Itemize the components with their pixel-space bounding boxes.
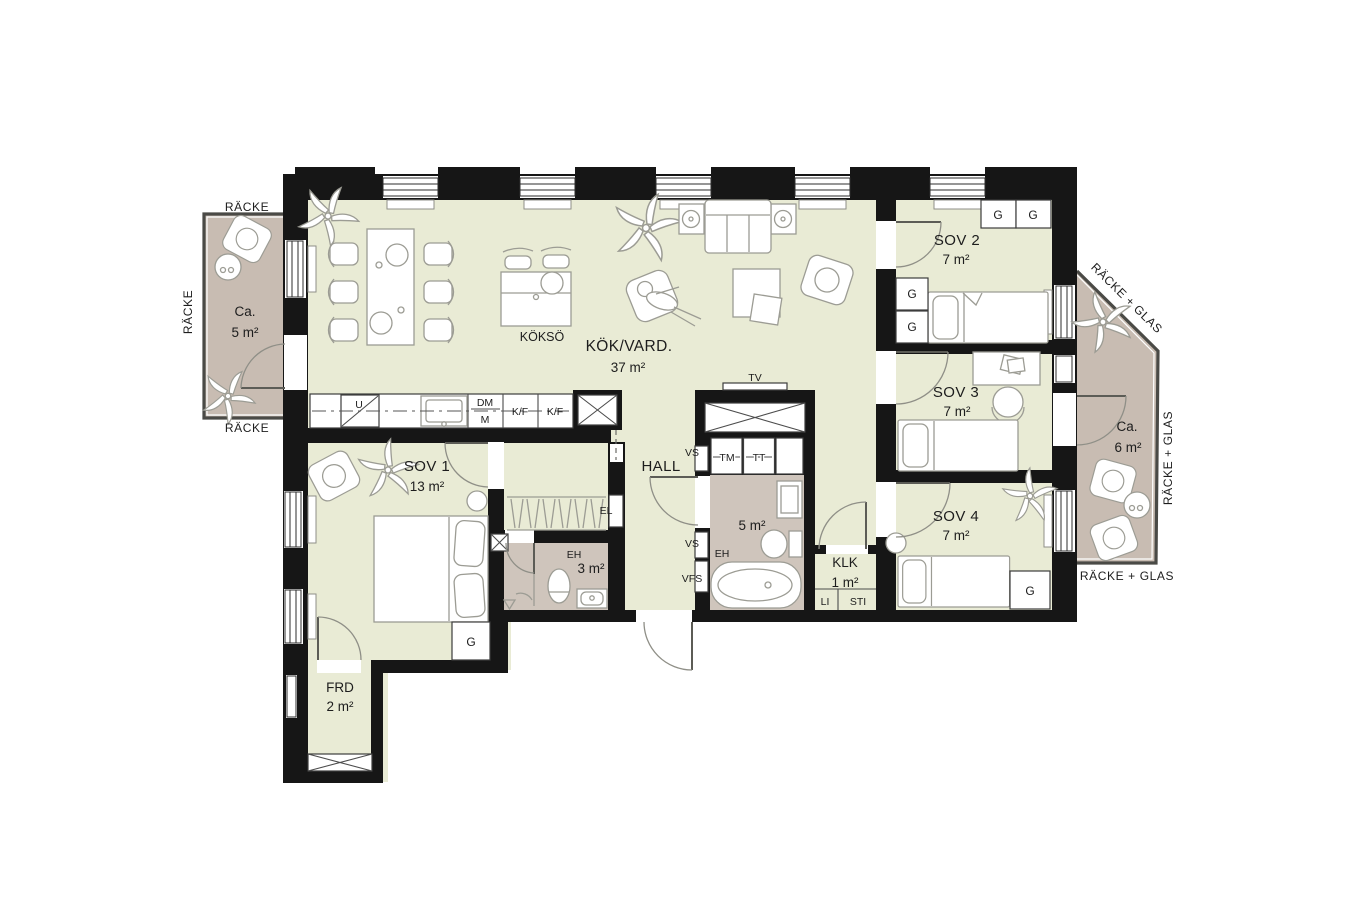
side-square <box>750 294 782 325</box>
room-label-sov3: SOV 3 <box>933 384 979 401</box>
room-label-sov4: SOV 4 <box>933 508 979 525</box>
label-vs-top: VS <box>685 447 699 459</box>
window-top-4 <box>795 178 850 209</box>
g-label-stack-a: G <box>907 287 916 301</box>
label-oven: U <box>355 399 363 411</box>
label-kokso: KÖKSÖ <box>520 330 565 344</box>
area-label-sov2: 7 m² <box>943 252 971 267</box>
label-m: M <box>481 414 490 426</box>
label-li: LI <box>821 596 830 608</box>
label-vfs: VFS <box>682 573 702 585</box>
railing-glass-label-bottom: RÄCKE + GLAS <box>1080 569 1174 583</box>
bed-sov1 <box>374 516 488 622</box>
label-dm: DM <box>477 397 493 409</box>
window-right-sov4 <box>1044 491 1072 551</box>
eh-label-bath-small: EH <box>567 549 582 561</box>
window-left-sov1-a <box>285 492 316 547</box>
dining-group <box>329 229 454 345</box>
room-label-sov2: SOV 2 <box>934 232 980 249</box>
area-label-sov4: 7 m² <box>943 528 971 543</box>
window-top-2 <box>520 178 575 209</box>
label-kf-2: K/F <box>547 406 563 418</box>
room-label-hall: HALL <box>641 458 680 475</box>
bed-sov2 <box>928 292 1048 343</box>
window-top-1 <box>383 178 438 209</box>
railing-label-top: RÄCKE <box>225 200 269 214</box>
label-vs-bottom: VS <box>685 538 699 550</box>
label-tm: TM <box>719 452 734 464</box>
floor-plan-drawing: RÄCKE RÄCKE RÄCKE Ca. 5 m² KÖK/VARD. 37 … <box>0 0 1366 911</box>
label-sti: STI <box>850 596 866 608</box>
label-kf-1: K/F <box>512 406 528 418</box>
window-top-5 <box>930 178 985 209</box>
area-label-bath-small: 3 m² <box>578 561 606 576</box>
area-label-bath-large: 5 m² <box>739 518 767 533</box>
railing-glass-label-vertical: RÄCKE + GLAS <box>1161 411 1175 505</box>
shaft-kitchen <box>578 395 617 425</box>
bed-sov3 <box>898 420 1018 471</box>
room-label-klk: KLK <box>832 555 858 570</box>
room-label-sov1: SOV 1 <box>404 458 450 475</box>
label-tt: TT <box>753 452 766 464</box>
balcony-left-area: 5 m² <box>232 325 260 340</box>
area-label-kitchen-living: 37 m² <box>611 360 646 375</box>
window-right-sov3 <box>1056 356 1072 382</box>
table-balcony-right <box>1124 492 1150 518</box>
room-label-kitchen-living: KÖK/VARD. <box>586 337 673 355</box>
room-label-frd: FRD <box>326 680 354 695</box>
floor-plan-page: RÄCKE RÄCKE RÄCKE Ca. 5 m² KÖK/VARD. 37 … <box>0 0 1366 911</box>
area-label-frd: 2 m² <box>327 699 355 714</box>
eh-label-bath-large: EH <box>715 548 730 560</box>
tv-unit <box>723 383 787 390</box>
window-left-living <box>287 241 316 297</box>
area-label-sov1: 13 m² <box>410 479 445 494</box>
bed-sov4 <box>898 556 1010 607</box>
g-label-stack-b: G <box>907 320 916 334</box>
kitchen-counter <box>310 394 573 428</box>
balcony-right-area: 6 m² <box>1115 440 1143 455</box>
railing-label-bottom: RÄCKE <box>225 421 269 435</box>
g-label-sov2-b: G <box>1028 208 1037 222</box>
area-label-klk: 1 m² <box>832 575 860 590</box>
balcony-left-ca: Ca. <box>234 304 255 319</box>
balcony-right-ca: Ca. <box>1116 419 1137 434</box>
shaft-frd <box>308 754 372 771</box>
shaft-small <box>491 534 508 551</box>
label-tv: TV <box>748 372 761 384</box>
window-frd <box>287 676 296 717</box>
bedside-table-sov1 <box>467 491 487 511</box>
window-left-sov1-b <box>285 590 316 643</box>
railing-label-left: RÄCKE <box>181 290 195 334</box>
label-el: EL <box>600 505 613 517</box>
area-label-sov3: 7 m² <box>944 404 972 419</box>
door-entrance <box>644 622 692 670</box>
g-label-sov1: G <box>466 635 475 649</box>
g-label-sov2-a: G <box>993 208 1002 222</box>
shaft-bathroom-top <box>705 403 805 432</box>
table-balcony-left <box>215 254 241 280</box>
g-label-sov4: G <box>1025 584 1034 598</box>
